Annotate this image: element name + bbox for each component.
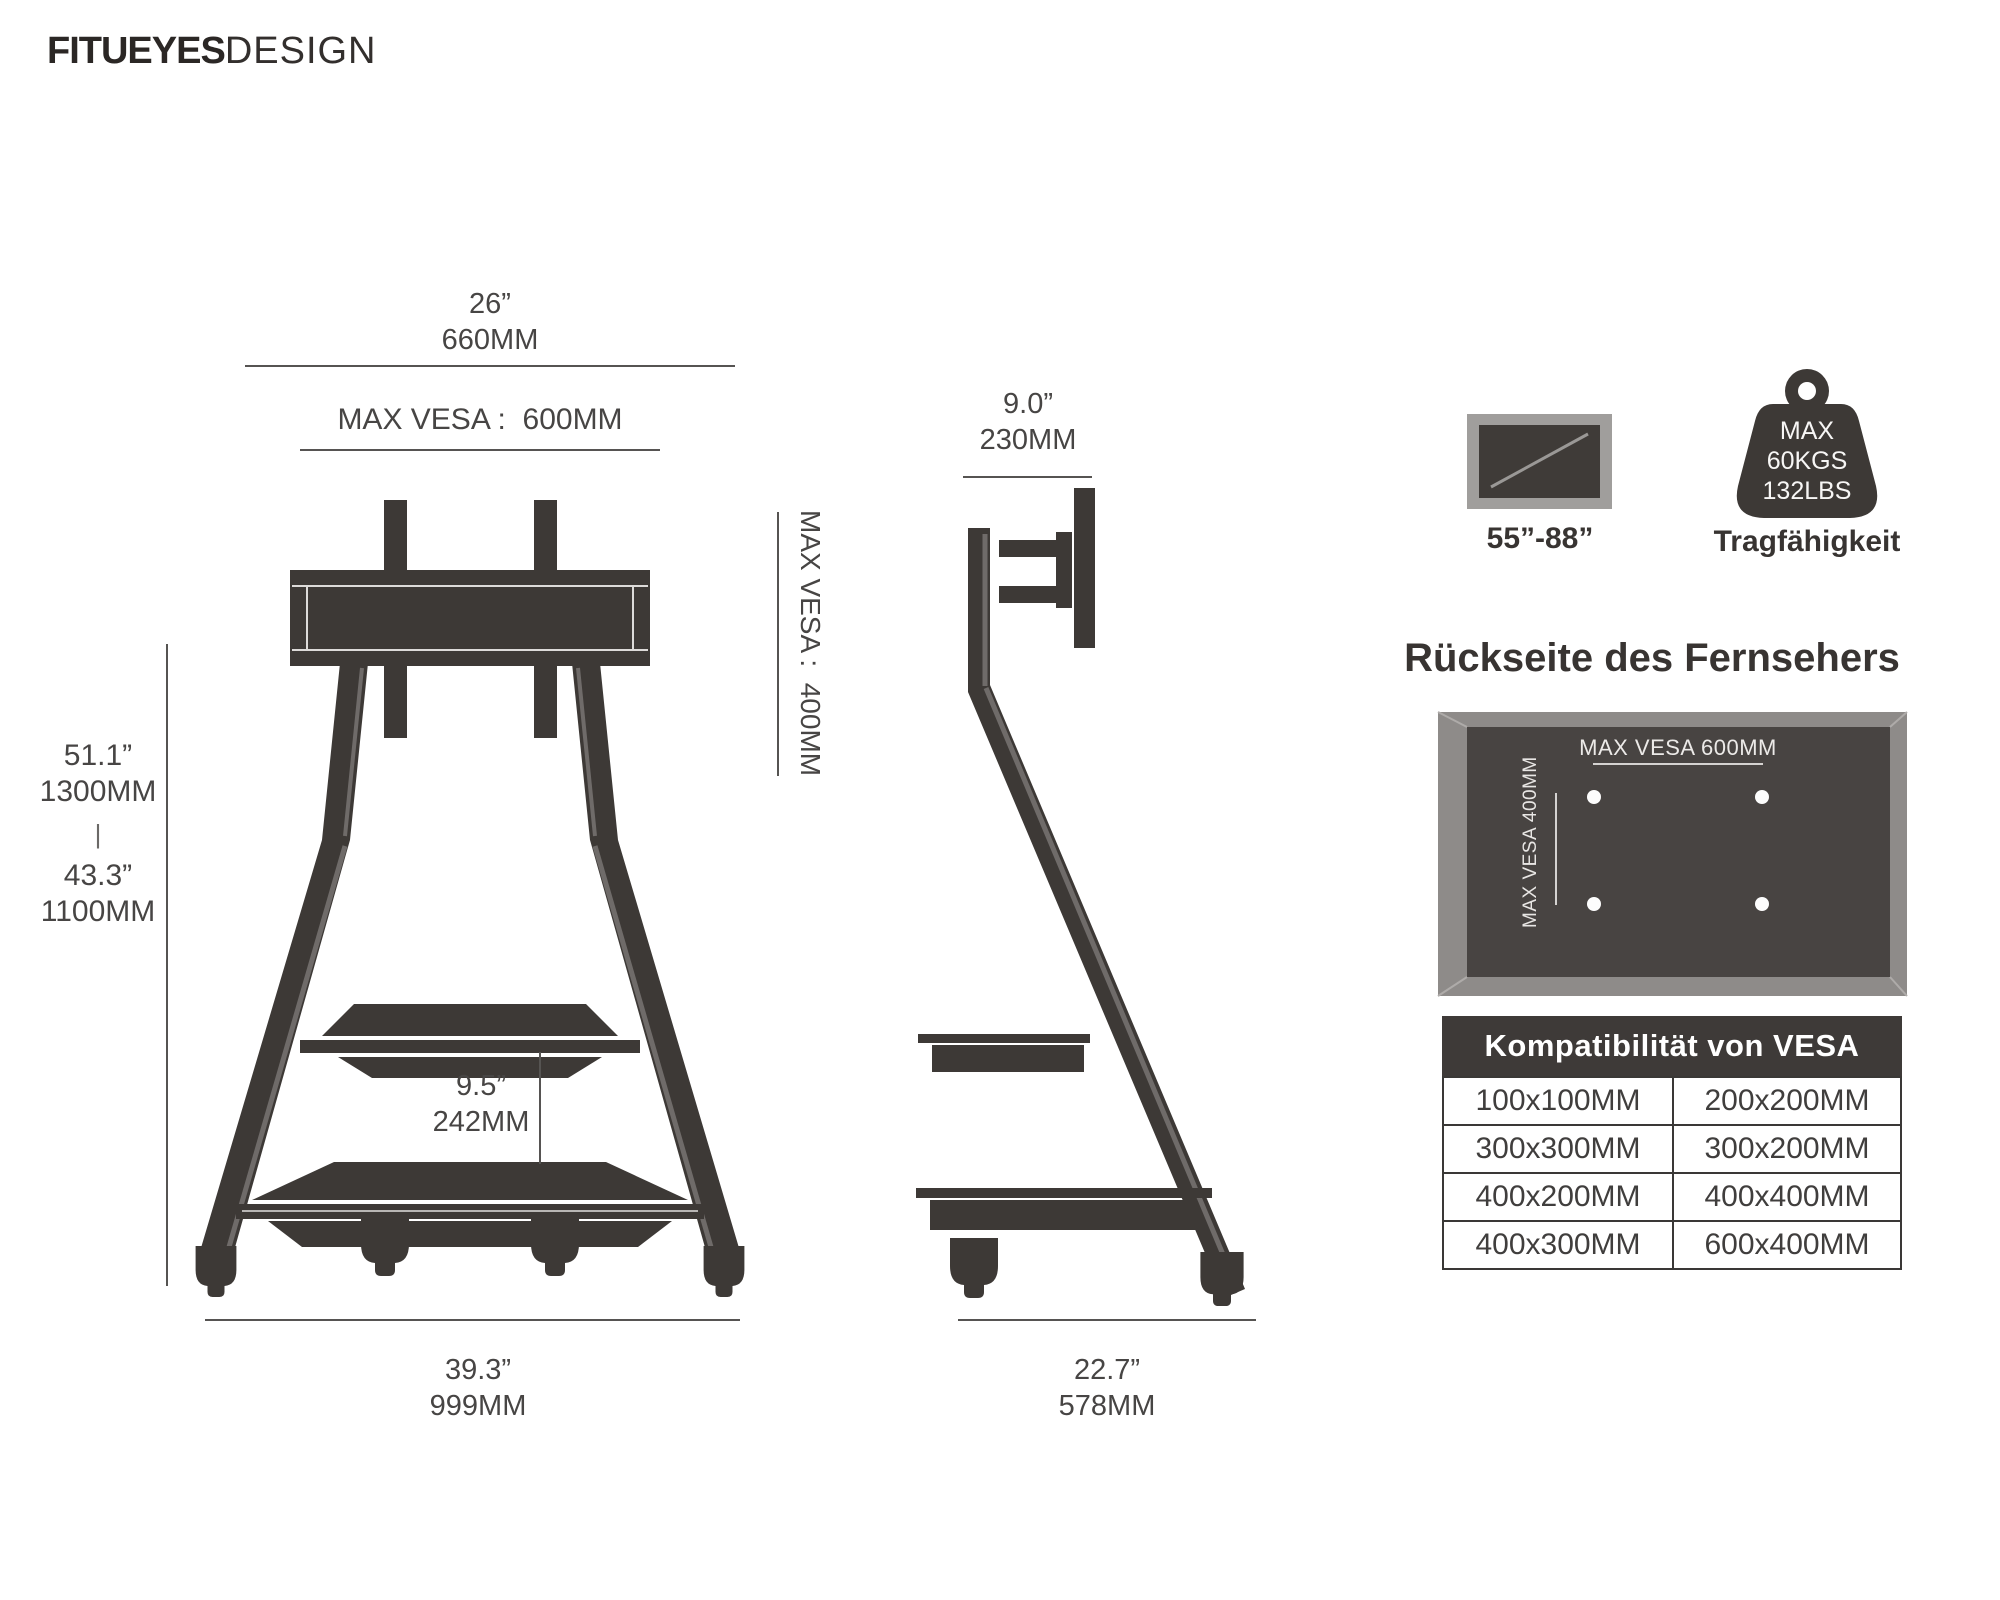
upper-shelf-rail xyxy=(300,1040,640,1053)
vesa-table-header: Kompatibilität von VESA xyxy=(1442,1016,1902,1076)
height-range-separator: | xyxy=(18,810,178,858)
caster xyxy=(361,1216,409,1276)
vesa-hole xyxy=(1755,897,1769,911)
table-cell: 600x400MM xyxy=(1672,1220,1900,1268)
tv-size-range-label: 55”-88” xyxy=(1487,522,1594,556)
side-base xyxy=(930,1200,1196,1230)
table-cell: 300x300MM xyxy=(1444,1124,1672,1172)
table-cell: 300x200MM xyxy=(1672,1124,1900,1172)
caster xyxy=(704,1246,745,1297)
vesa-hole xyxy=(1587,790,1601,804)
side-post-leg xyxy=(968,528,1245,1298)
vesa-compatibility-table: Kompatibilität von VESA 100x100MM 200x20… xyxy=(1442,1016,1902,1270)
tv-size-icon xyxy=(1467,414,1612,509)
table-cell: 400x300MM xyxy=(1444,1220,1672,1268)
logo-bold: FITUEYES xyxy=(47,30,225,72)
shelf-gap-label: 9.5”242MM xyxy=(433,1068,530,1140)
side-shelf xyxy=(932,1045,1084,1072)
vesa-table-body: 100x100MM 200x200MM 300x300MM 300x200MM … xyxy=(1442,1076,1902,1270)
front-height-range-label: 51.1” 1300MM | 43.3” 1100MM xyxy=(18,738,178,930)
crossbar xyxy=(290,570,650,666)
panel-vesa-height-label: MAX VESA 400MM xyxy=(1520,776,1542,928)
caster xyxy=(531,1216,579,1276)
panel-vesa-width-label: MAX VESA 600MM xyxy=(1579,735,1777,761)
side-arm-top xyxy=(999,540,1061,557)
logo-light: DESIGN xyxy=(225,30,377,72)
front-view-drawing xyxy=(196,500,745,1297)
side-base-depth-label: 22.7”578MM xyxy=(1059,1352,1156,1424)
front-max-vesa-height-label: MAX VESA : 400MM xyxy=(794,510,826,790)
side-arm-bottom xyxy=(999,586,1061,603)
brand-logo: FITUEYESDESIGN xyxy=(47,30,377,73)
side-tv-bar xyxy=(1074,488,1095,648)
table-cell: 200x200MM xyxy=(1672,1076,1900,1124)
caster xyxy=(196,1246,237,1297)
upper-shelf xyxy=(322,1004,618,1036)
front-max-vesa-width-label: MAX VESA : 600MM xyxy=(337,402,622,438)
weight-capacity-text: MAX60KGS132LBS xyxy=(1763,416,1852,506)
side-base-lip xyxy=(916,1188,1212,1198)
caster xyxy=(1200,1252,1243,1306)
diagram-graphics xyxy=(0,0,2000,1600)
side-shelf-lip xyxy=(918,1034,1090,1043)
side-top-depth-label: 9.0”230MM xyxy=(980,386,1077,458)
weight-capacity-label: Tragfähigkeit xyxy=(1714,525,1901,559)
front-top-width-label: 26”660MM xyxy=(442,286,539,358)
table-cell: 400x200MM xyxy=(1444,1172,1672,1220)
caster xyxy=(950,1238,998,1298)
side-bracket-plate xyxy=(1056,532,1072,608)
page: FITUEYESDESIGN 26”660MM MAX VESA : 600MM… xyxy=(0,0,2000,1600)
table-cell: 400x400MM xyxy=(1672,1172,1900,1220)
vesa-hole xyxy=(1587,897,1601,911)
base-shelf xyxy=(252,1162,688,1200)
side-view-drawing xyxy=(916,488,1245,1306)
table-cell: 100x100MM xyxy=(1444,1076,1672,1124)
vesa-hole xyxy=(1755,790,1769,804)
back-panel-title: Rückseite des Fernsehers xyxy=(1404,636,1900,681)
front-base-width-label: 39.3”999MM xyxy=(430,1352,527,1424)
base-underside xyxy=(268,1221,672,1247)
